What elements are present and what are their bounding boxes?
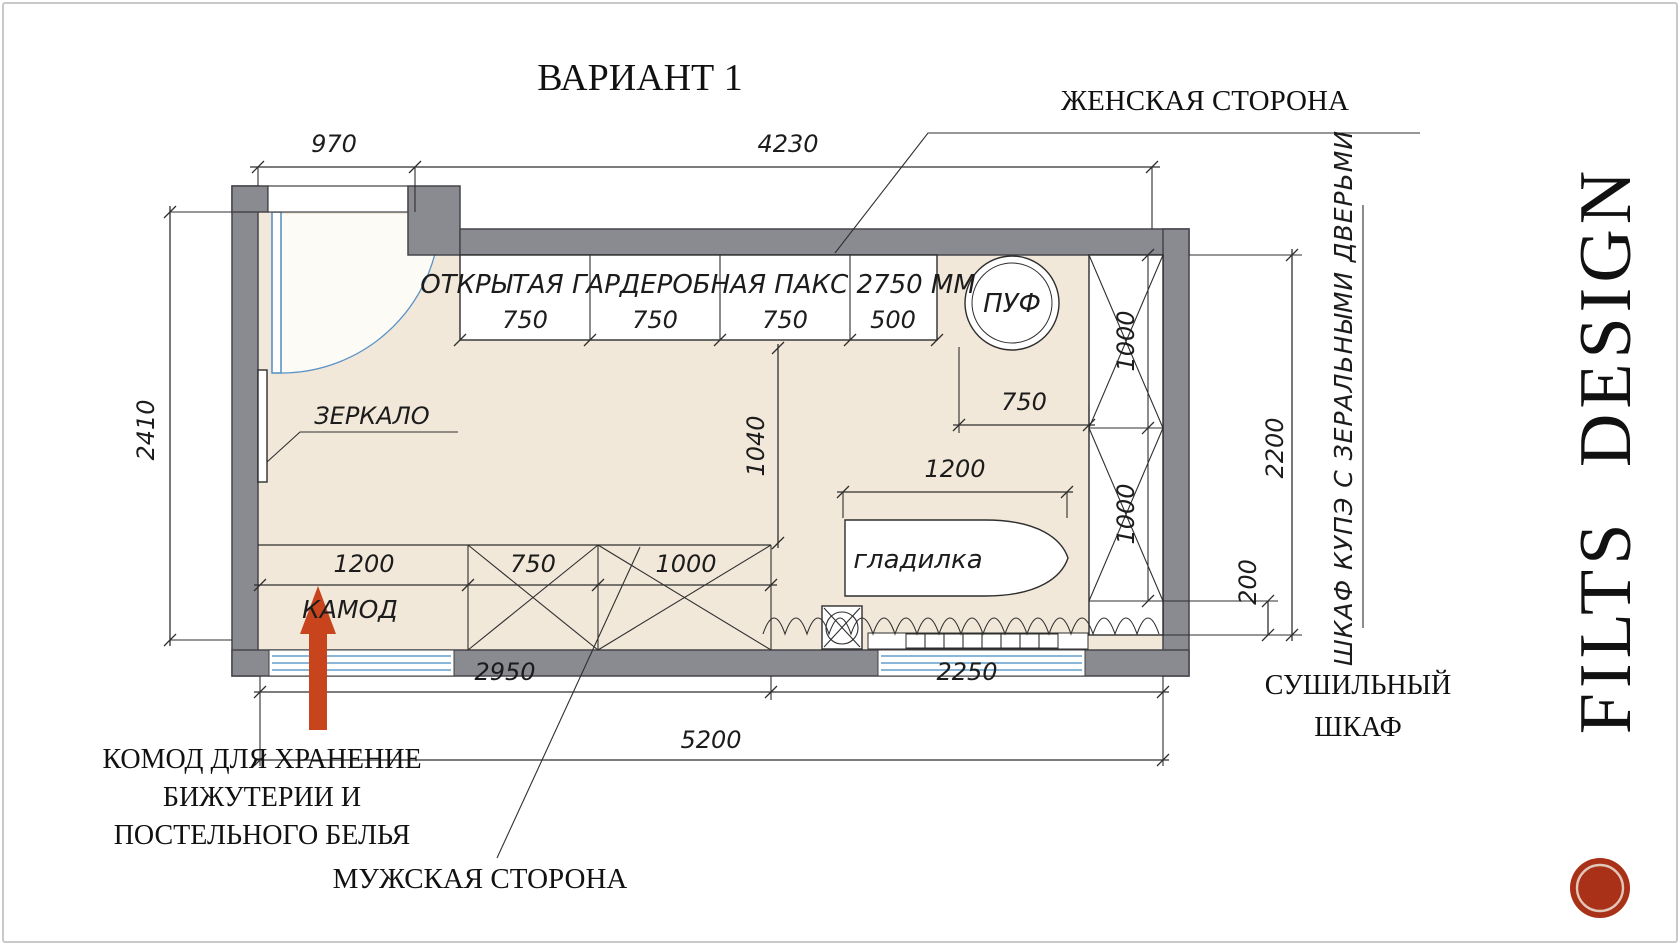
dim-mens-750: 750 xyxy=(510,550,556,578)
window-bottom-left xyxy=(269,650,454,676)
dim-5200: 5200 xyxy=(680,726,741,754)
wall-left xyxy=(232,186,258,676)
dim-2950: 2950 xyxy=(474,658,535,686)
drying-cabinet-line2: ШКАФ xyxy=(1314,712,1402,743)
dim-commode-1200: 1200 xyxy=(333,550,394,578)
dim-200: 200 xyxy=(1234,559,1262,605)
wall-step-corner xyxy=(408,186,460,255)
commode-label: КАМОД xyxy=(302,595,398,624)
pouf-label: ПУФ xyxy=(983,289,1041,319)
dim-1040: 1040 xyxy=(742,415,770,476)
dim-paks-1: 750 xyxy=(502,306,548,334)
commode-note-line2: БИЖУТЕРИИ И xyxy=(163,782,361,813)
laundry-hamper xyxy=(822,606,862,649)
male-side-label: МУЖСКАЯ СТОРОНА xyxy=(333,863,628,895)
page-title: ВАРИАНТ 1 xyxy=(537,57,743,99)
female-side-label: ЖЕНСКАЯ СТОРОНА xyxy=(1061,85,1349,117)
dim-2200: 2200 xyxy=(1261,417,1289,478)
dim-ironing-1200: 1200 xyxy=(924,455,985,483)
brand-logo-text: FILTS DESIGN xyxy=(1565,166,1647,734)
radiator xyxy=(868,633,1088,649)
brand-stamp-logo xyxy=(1570,858,1630,918)
dim-paks-2: 750 xyxy=(632,306,678,334)
dim-2250: 2250 xyxy=(936,658,997,686)
commode-note-line3: ПОСТЕЛЬНОГО БЕЛЬЯ xyxy=(114,820,411,851)
dim-wardrobe-1000-top: 1000 xyxy=(1112,310,1140,371)
sliding-wardrobe-label: ШКАФ КУПЭ С ЗЕРАЛЬНЫМИ ДВЕРЬМИ xyxy=(1329,130,1358,666)
dim-wardrobe-1000-bottom: 1000 xyxy=(1112,483,1140,544)
dim-970: 970 xyxy=(311,130,357,158)
dim-4230: 4230 xyxy=(757,130,818,158)
commode-note-line1: КОМОД ДЛЯ ХРАНЕНИЕ xyxy=(102,744,421,775)
ironing-board-label: гладилка xyxy=(853,545,982,575)
dimension-left xyxy=(164,206,232,646)
door-leaf xyxy=(272,212,281,373)
mirror-label: ЗЕРКАЛО xyxy=(314,402,429,430)
sliding-wardrobe-column xyxy=(1089,249,1163,635)
drying-cabinet-line1: СУШИЛЬНЫЙ xyxy=(1265,670,1452,701)
door-opening xyxy=(268,186,408,212)
dim-pouf-750: 750 xyxy=(1001,388,1047,416)
wall-top xyxy=(460,229,1189,255)
dim-mens-1000: 1000 xyxy=(655,550,716,578)
wall-door-stub xyxy=(232,186,268,212)
dim-2410: 2410 xyxy=(132,399,160,460)
slide: ВАРИАНТ 1 ЖЕНСКАЯ СТОРОНА МУЖСКАЯ СТОРОН… xyxy=(0,0,1680,945)
dim-paks-3: 750 xyxy=(762,306,808,334)
wall-right xyxy=(1163,229,1189,676)
dim-paks-4: 500 xyxy=(870,306,916,334)
floor-plan-canvas: ВАРИАНТ 1 ЖЕНСКАЯ СТОРОНА МУЖСКАЯ СТОРОН… xyxy=(0,0,1680,945)
open-wardrobe-label: ОТКРЫТАЯ ГАРДЕРОБНАЯ ПАКС 2750 ММ xyxy=(420,270,976,300)
